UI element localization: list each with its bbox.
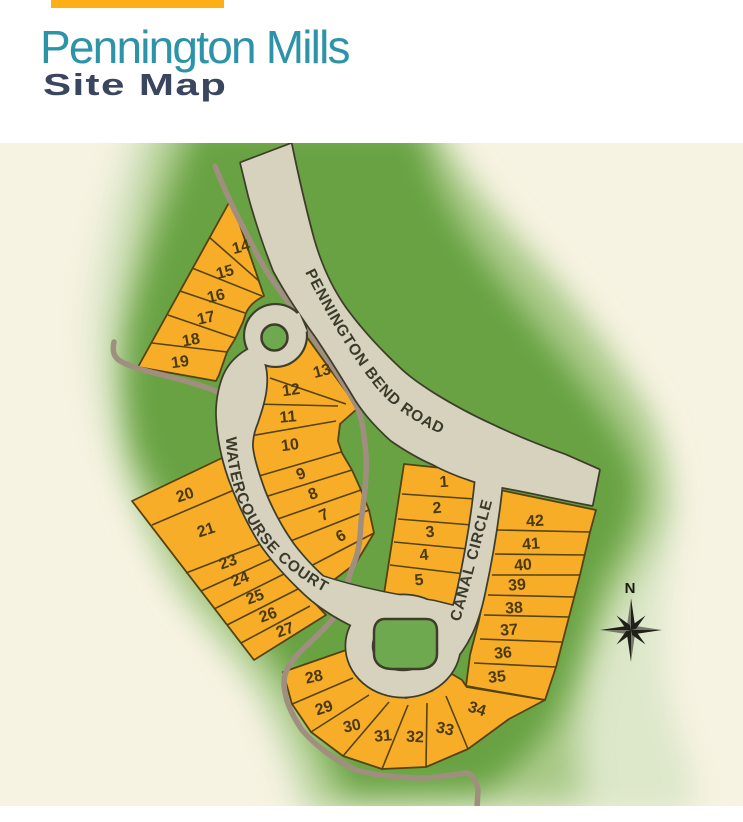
svg-text:12: 12 [281,381,301,400]
svg-text:28: 28 [304,667,325,687]
svg-text:10: 10 [280,436,300,455]
svg-text:18: 18 [181,331,202,351]
svg-text:37: 37 [500,621,519,639]
svg-text:42: 42 [526,513,545,531]
svg-text:35: 35 [487,668,507,687]
svg-text:4: 4 [419,547,429,565]
svg-text:31: 31 [373,727,392,745]
svg-text:11: 11 [279,408,297,426]
svg-text:1: 1 [439,474,449,492]
svg-text:36: 36 [493,644,512,662]
svg-text:39: 39 [508,576,527,594]
svg-text:40: 40 [513,556,532,574]
svg-text:19: 19 [170,353,190,372]
svg-text:2: 2 [432,500,442,518]
svg-text:33: 33 [434,719,455,739]
svg-text:3: 3 [425,524,435,542]
svg-text:17: 17 [196,308,217,328]
svg-text:N: N [625,580,636,597]
svg-text:32: 32 [406,729,425,747]
svg-text:30: 30 [342,716,363,736]
svg-text:5: 5 [414,572,425,590]
svg-text:41: 41 [522,535,541,553]
svg-text:38: 38 [505,600,524,618]
